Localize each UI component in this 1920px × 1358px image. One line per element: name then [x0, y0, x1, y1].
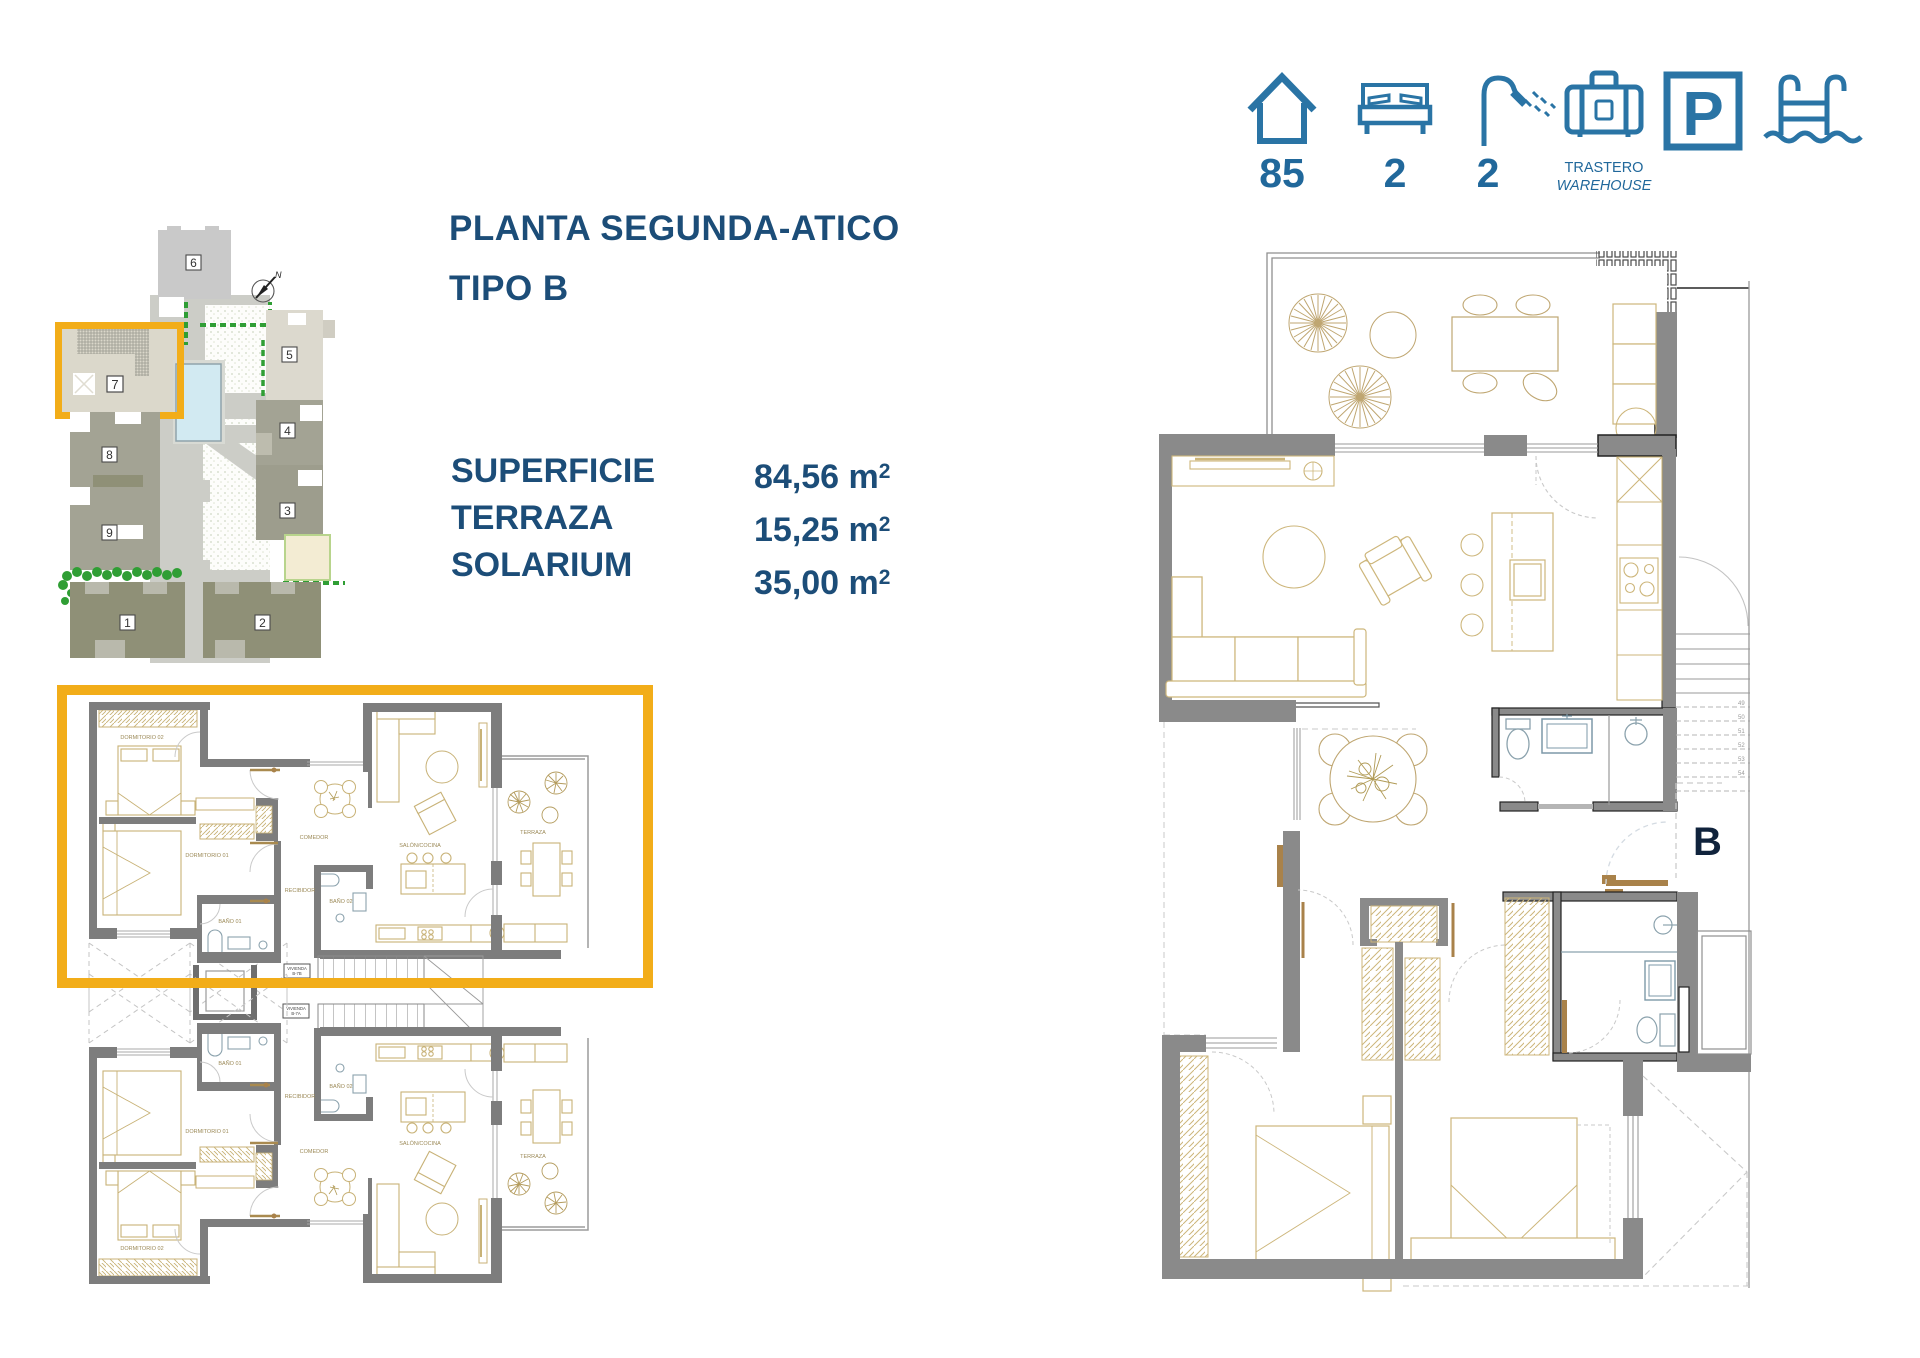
svg-text:RECIBIDOR: RECIBIDOR	[285, 888, 316, 894]
svg-text:B-7A: B-7A	[291, 1011, 301, 1016]
svg-text:50: 50	[1738, 715, 1745, 721]
svg-text:49: 49	[1738, 701, 1745, 707]
svg-text:BAÑO 02: BAÑO 02	[329, 1083, 352, 1090]
svg-text:52: 52	[1738, 743, 1745, 749]
svg-text:DORMITORIO 01: DORMITORIO 01	[185, 1129, 228, 1135]
svg-text:7: 7	[111, 377, 118, 392]
svg-text:N: N	[275, 270, 282, 280]
svg-text:53: 53	[1738, 757, 1745, 763]
svg-text:9: 9	[106, 526, 113, 540]
svg-text:BAÑO 01: BAÑO 01	[218, 918, 241, 925]
svg-text:TERRAZA: TERRAZA	[520, 830, 546, 836]
svg-text:TRASTERO: TRASTERO	[1565, 160, 1644, 176]
svg-text:B: B	[1693, 820, 1722, 864]
svg-text:1: 1	[124, 616, 131, 630]
svg-text:TERRAZA: TERRAZA	[520, 1154, 546, 1160]
svg-text:BAÑO 01: BAÑO 01	[218, 1060, 241, 1067]
svg-text:2: 2	[1477, 150, 1500, 196]
svg-text:B-7B: B-7B	[292, 971, 302, 976]
svg-text:3: 3	[284, 504, 291, 518]
svg-text:BAÑO 02: BAÑO 02	[329, 898, 352, 905]
svg-text:SALÓN/COCINA: SALÓN/COCINA	[399, 1140, 441, 1147]
svg-text:85: 85	[1259, 150, 1305, 196]
svg-text:P: P	[1682, 80, 1723, 149]
svg-text:4: 4	[284, 424, 291, 438]
svg-text:DORMITORIO 02: DORMITORIO 02	[120, 1246, 163, 1252]
svg-text:DORMITORIO 02: DORMITORIO 02	[120, 735, 163, 741]
svg-text:DORMITORIO 01: DORMITORIO 01	[185, 853, 228, 859]
svg-text:6: 6	[190, 256, 197, 270]
svg-text:2: 2	[259, 616, 266, 630]
svg-text:RECIBIDOR: RECIBIDOR	[285, 1094, 316, 1100]
svg-text:WAREHOUSE: WAREHOUSE	[1557, 178, 1652, 194]
svg-text:5: 5	[286, 348, 293, 362]
svg-text:COMEDOR: COMEDOR	[300, 835, 329, 841]
svg-text:54: 54	[1738, 771, 1745, 777]
svg-text:SALÓN/COCINA: SALÓN/COCINA	[399, 842, 441, 849]
svg-text:8: 8	[106, 448, 113, 462]
svg-text:COMEDOR: COMEDOR	[300, 1149, 329, 1155]
svg-text:51: 51	[1738, 729, 1745, 735]
svg-text:2: 2	[1384, 150, 1407, 196]
